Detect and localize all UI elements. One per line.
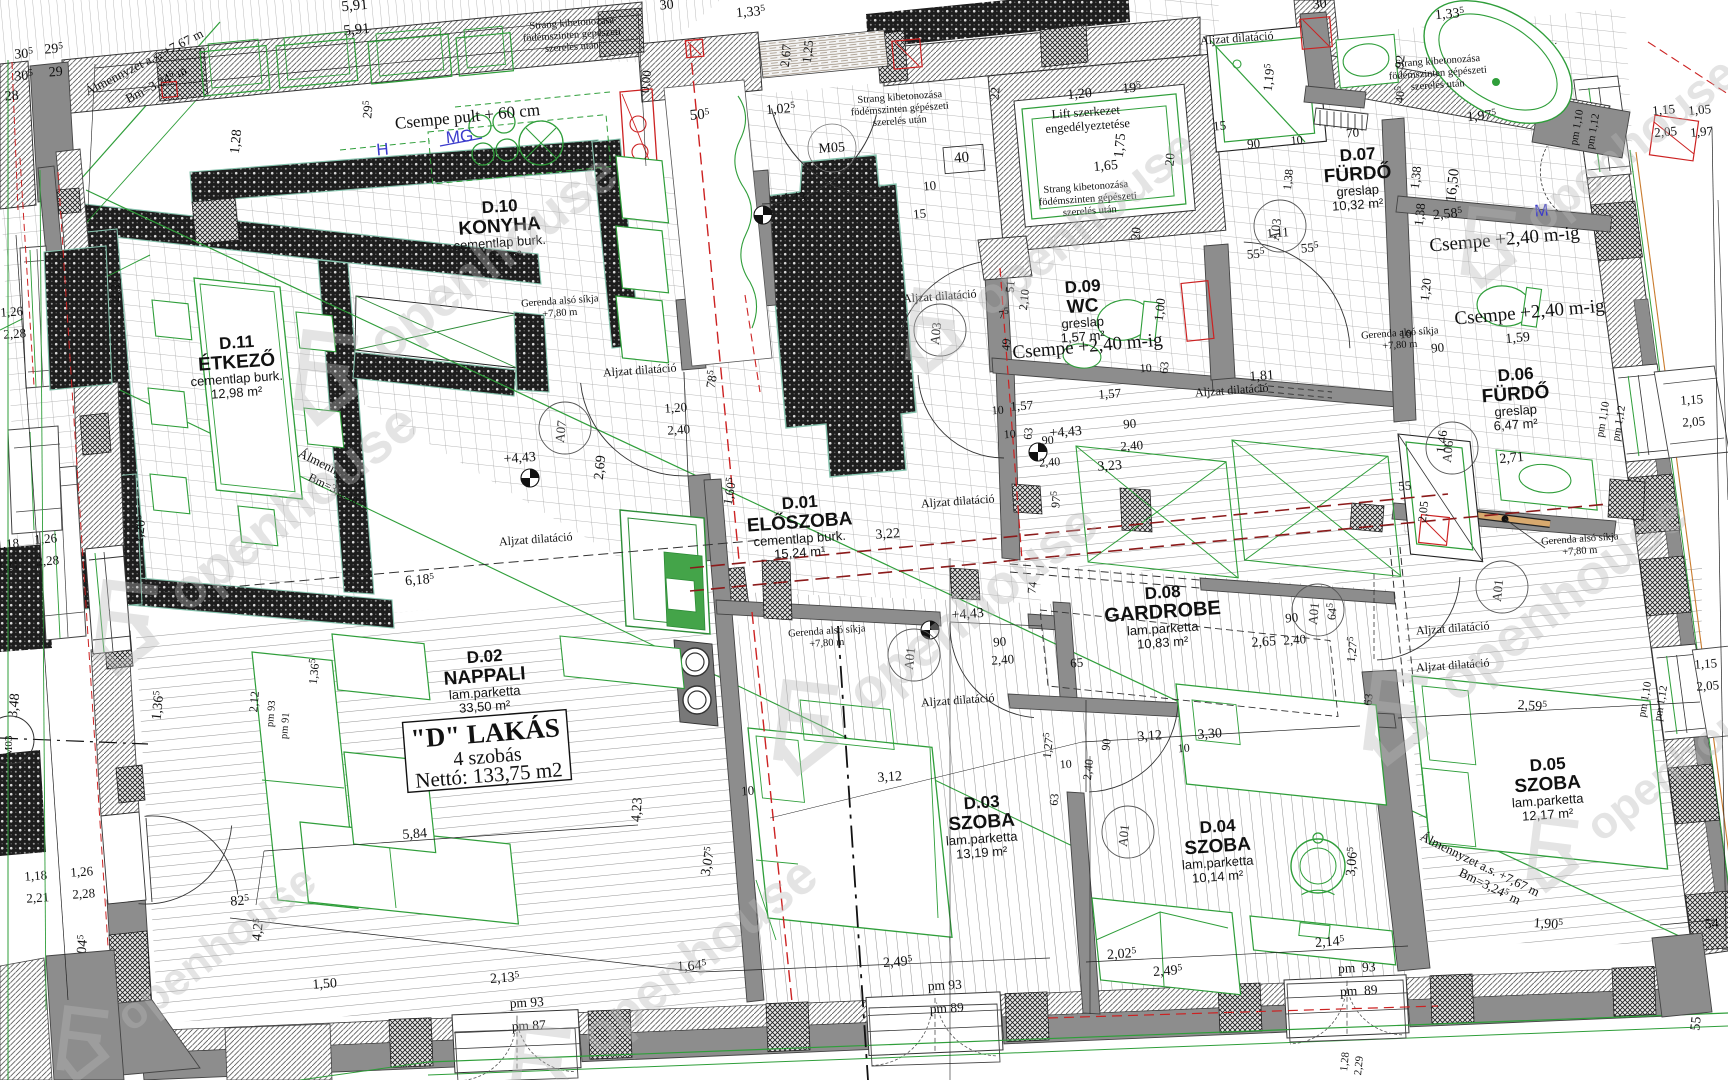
svg-text:D.11: D.11 <box>219 332 255 353</box>
svg-text:1,57: 1,57 <box>1098 385 1122 402</box>
svg-text:+4,43: +4,43 <box>773 190 806 207</box>
svg-text:5,91: 5,91 <box>343 21 371 39</box>
svg-text:2,21: 2,21 <box>0 557 20 574</box>
svg-text:2,28: 2,28 <box>36 552 60 569</box>
svg-text:90: 90 <box>1041 433 1054 448</box>
svg-text:10: 10 <box>1290 133 1303 148</box>
svg-text:D.01: D.01 <box>781 492 818 513</box>
svg-text:3,12: 3,12 <box>877 769 902 786</box>
svg-text:30: 30 <box>659 0 674 14</box>
svg-text:2,21: 2,21 <box>26 889 50 906</box>
svg-text:2,40: 2,40 <box>1039 454 1061 469</box>
svg-text:2,40: 2,40 <box>991 651 1015 668</box>
svg-text:54: 54 <box>1704 917 1719 933</box>
svg-text:1,11: 1,11 <box>1266 224 1289 241</box>
svg-text:90: 90 <box>1246 135 1260 151</box>
svg-text:29: 29 <box>48 65 63 81</box>
svg-text:2,12: 2,12 <box>246 691 262 713</box>
svg-text:10: 10 <box>1177 741 1190 756</box>
svg-text:2,31: 2,31 <box>108 277 125 303</box>
svg-text:3,22: 3,22 <box>875 526 900 543</box>
svg-text:A01: A01 <box>1489 579 1506 603</box>
svg-text:90: 90 <box>1123 416 1137 432</box>
svg-text:D.02: D.02 <box>466 646 503 667</box>
svg-text:2,40: 2,40 <box>1120 437 1144 454</box>
svg-text:1,59: 1,59 <box>1505 330 1531 347</box>
svg-text:1,20: 1,20 <box>664 399 688 416</box>
svg-text:2,05: 2,05 <box>1682 413 1706 430</box>
svg-text:90: 90 <box>1430 339 1444 355</box>
svg-text:63: 63 <box>1020 427 1035 440</box>
svg-text:2,69: 2,69 <box>592 455 609 481</box>
svg-text:1,46: 1,46 <box>1433 429 1450 454</box>
svg-text:+4,43: +4,43 <box>1049 424 1082 441</box>
svg-text:2,40: 2,40 <box>1080 758 1096 780</box>
svg-text:90: 90 <box>993 634 1007 650</box>
svg-text:2,05: 2,05 <box>1415 500 1431 522</box>
svg-text:2,71: 2,71 <box>1499 450 1525 467</box>
svg-text:1,38: 1,38 <box>1411 202 1428 226</box>
svg-text:1,81: 1,81 <box>1249 368 1274 385</box>
svg-text:pm 89: pm 89 <box>1340 982 1378 999</box>
svg-text:49: 49 <box>998 338 1013 351</box>
svg-text:pm 93: pm 93 <box>509 994 544 1011</box>
svg-text:65: 65 <box>1070 655 1084 671</box>
svg-text:3,23: 3,23 <box>1097 458 1122 475</box>
svg-text:D.05: D.05 <box>1529 754 1566 775</box>
svg-text:M03: M03 <box>3 735 15 756</box>
svg-text:2,28: 2,28 <box>72 885 96 902</box>
svg-text:1,28: 1,28 <box>1338 1051 1352 1072</box>
svg-text:6,47 m²: 6,47 m² <box>1493 415 1539 433</box>
svg-text:20: 20 <box>1127 226 1143 240</box>
svg-text:1,28: 1,28 <box>228 129 245 155</box>
svg-text:10: 10 <box>1003 427 1016 442</box>
svg-text:2,29: 2,29 <box>1352 1055 1366 1076</box>
svg-text:+4,43: +4,43 <box>503 450 536 467</box>
svg-text:pm 89: pm 89 <box>929 1000 964 1017</box>
svg-text:pm 91: pm 91 <box>279 712 292 739</box>
svg-text:1,15: 1,15 <box>1694 655 1718 672</box>
svg-text:90: 90 <box>1285 610 1299 626</box>
svg-text:1,15: 1,15 <box>1680 391 1704 408</box>
svg-text:1,26: 1,26 <box>34 530 58 547</box>
svg-text:10: 10 <box>922 177 936 193</box>
svg-text:2,40: 2,40 <box>1283 631 1307 648</box>
svg-text:H: H <box>376 140 390 160</box>
svg-text:D.09: D.09 <box>1064 276 1101 297</box>
svg-text:70: 70 <box>1345 124 1359 140</box>
svg-text:0,00: 0,00 <box>637 69 654 93</box>
svg-text:10: 10 <box>1399 327 1412 342</box>
svg-text:90: 90 <box>1098 738 1113 751</box>
svg-text:1,57: 1,57 <box>1010 397 1034 414</box>
svg-text:M05: M05 <box>818 140 845 157</box>
svg-text:2,40: 2,40 <box>667 421 691 438</box>
svg-text:A01: A01 <box>1305 602 1322 626</box>
svg-text:3,12: 3,12 <box>1137 728 1162 745</box>
svg-text:pm 93: pm 93 <box>927 977 962 994</box>
svg-text:5,91: 5,91 <box>341 0 369 15</box>
svg-text:D.03: D.03 <box>963 792 1000 813</box>
svg-text:2,67: 2,67 <box>777 43 794 68</box>
svg-text:1,00: 1,00 <box>1151 297 1168 321</box>
svg-text:1,50: 1,50 <box>312 976 337 993</box>
svg-text:1,38: 1,38 <box>1280 168 1296 190</box>
svg-text:55: 55 <box>1688 1016 1704 1031</box>
svg-text:D.04: D.04 <box>1199 816 1237 837</box>
svg-text:30: 30 <box>1312 0 1327 13</box>
svg-text:5,84: 5,84 <box>402 826 427 843</box>
svg-text:1,25: 1,25 <box>799 39 816 63</box>
svg-text:28: 28 <box>4 89 19 105</box>
svg-text:10: 10 <box>991 403 1004 418</box>
svg-text:15: 15 <box>1212 117 1226 133</box>
svg-text:1,20: 1,20 <box>1067 86 1093 103</box>
svg-text:4,23: 4,23 <box>629 797 646 822</box>
svg-text:1,18: 1,18 <box>24 867 48 884</box>
svg-text:10: 10 <box>1059 757 1072 772</box>
svg-text:1,18: 1,18 <box>0 535 20 552</box>
svg-text:A01: A01 <box>1115 824 1132 848</box>
svg-text:D.06: D.06 <box>1497 364 1534 385</box>
svg-text:pm 93: pm 93 <box>265 700 278 727</box>
svg-text:2,05: 2,05 <box>1696 677 1720 694</box>
svg-text:92: 92 <box>1391 54 1407 68</box>
svg-text:A07: A07 <box>552 419 569 443</box>
svg-text:1,26: 1,26 <box>0 303 24 320</box>
svg-text:55: 55 <box>1398 478 1412 494</box>
svg-text:1,38: 1,38 <box>1407 165 1424 189</box>
svg-text:D.07: D.07 <box>1339 144 1376 165</box>
svg-text:2,65: 2,65 <box>1251 634 1276 651</box>
svg-text:10: 10 <box>741 783 755 799</box>
svg-text:1,26: 1,26 <box>70 863 94 880</box>
svg-text:63: 63 <box>1156 361 1171 374</box>
svg-text:1,20: 1,20 <box>1417 277 1434 301</box>
svg-text:10: 10 <box>1139 361 1152 376</box>
svg-text:63: 63 <box>1046 793 1061 806</box>
svg-text:22: 22 <box>986 86 1002 100</box>
svg-text:40: 40 <box>953 149 969 166</box>
svg-text:15: 15 <box>912 205 926 221</box>
